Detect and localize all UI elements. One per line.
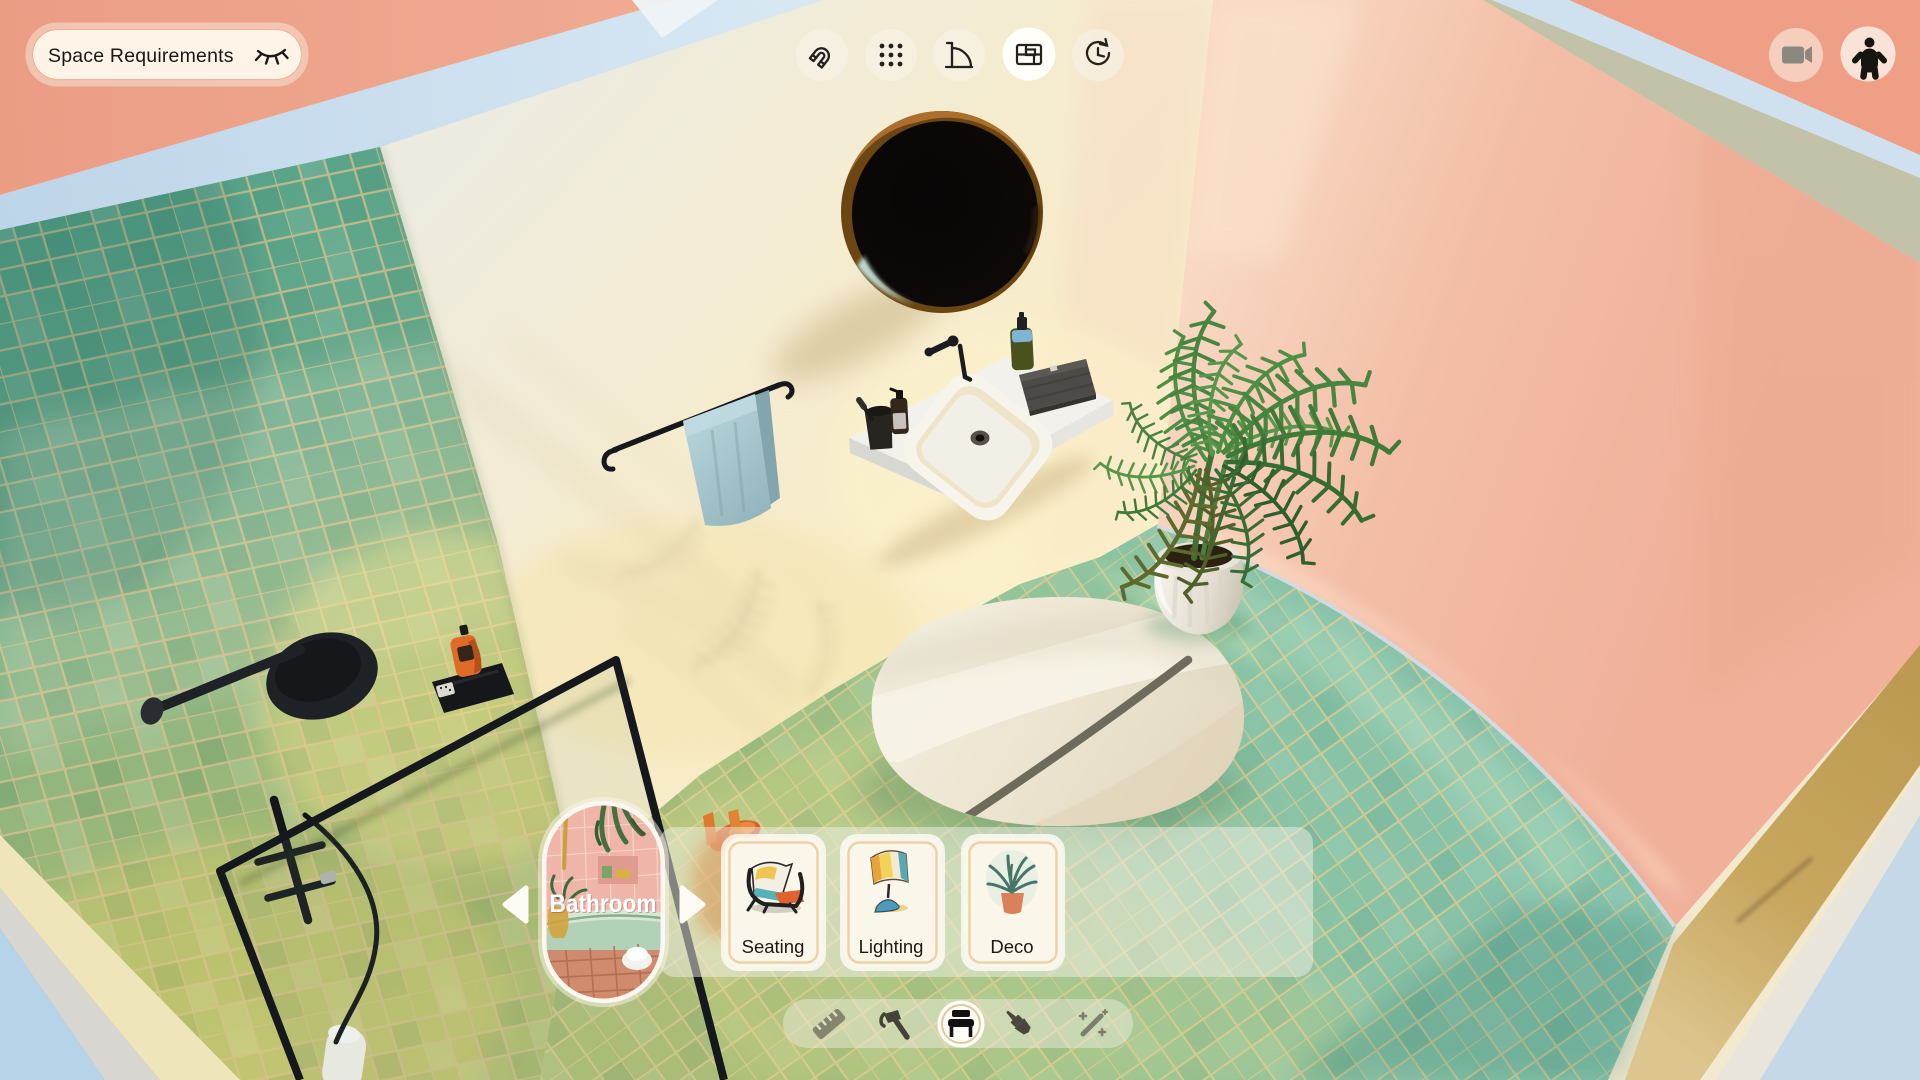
svg-text:Space Requirements: Space Requirements	[48, 45, 234, 67]
svg-text:Lighting: Lighting	[859, 936, 924, 957]
svg-text:Deco: Deco	[990, 936, 1033, 957]
svg-text:Bathroom: Bathroom	[550, 890, 657, 918]
svg-text:Seating: Seating	[742, 936, 805, 957]
